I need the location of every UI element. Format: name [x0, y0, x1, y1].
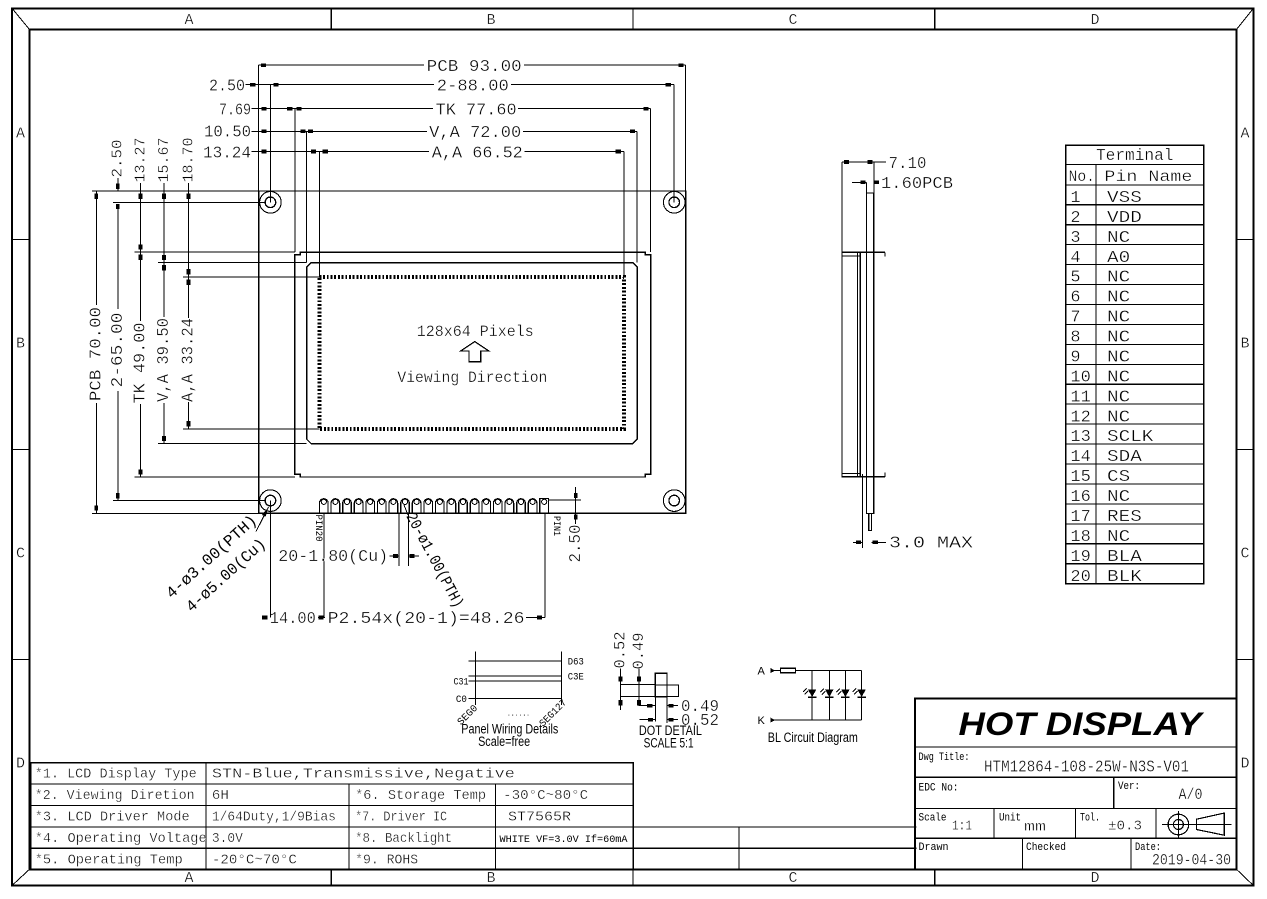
svg-text:NC: NC — [1107, 229, 1130, 248]
svg-text:5: 5 — [1070, 269, 1080, 288]
svg-text:A/0: A/0 — [1179, 786, 1203, 804]
svg-text:VDD: VDD — [1107, 209, 1142, 228]
svg-text:*8. Backlight: *8. Backlight — [355, 831, 452, 847]
svg-text:*5. Operating Temp: *5. Operating Temp — [35, 853, 183, 869]
svg-text:A0: A0 — [1107, 249, 1130, 268]
svg-text:B: B — [1240, 336, 1249, 353]
svg-text:20: 20 — [1070, 568, 1090, 587]
svg-text:D63: D63 — [568, 657, 584, 669]
svg-text:B: B — [486, 870, 495, 887]
svg-text:0.49: 0.49 — [630, 633, 648, 670]
svg-text:C31: C31 — [454, 677, 469, 689]
svg-text:WHITE VF=3.0V If=60mA: WHITE VF=3.0V If=60mA — [500, 834, 629, 846]
svg-text:D: D — [1090, 12, 1099, 29]
svg-text:BLK: BLK — [1107, 568, 1143, 587]
svg-text:15: 15 — [1070, 468, 1090, 487]
svg-text:A: A — [758, 666, 766, 678]
svg-text:BLA: BLA — [1107, 548, 1143, 567]
svg-text:0.52: 0.52 — [612, 632, 630, 669]
svg-text:D: D — [16, 756, 25, 773]
svg-text:SDA: SDA — [1107, 448, 1143, 467]
svg-text:7.10: 7.10 — [889, 155, 927, 174]
svg-text:Pin Name: Pin Name — [1104, 168, 1192, 186]
svg-text:*2. Viewing Diretion: *2. Viewing Diretion — [35, 788, 195, 804]
svg-text:1: 1 — [1070, 189, 1080, 208]
svg-text:C: C — [1240, 546, 1249, 563]
svg-text:B: B — [16, 336, 25, 353]
svg-text:Drawn: Drawn — [919, 842, 949, 854]
svg-text:......: ...... — [507, 706, 530, 720]
svg-text:Viewing Direction: Viewing Direction — [397, 369, 547, 387]
svg-text:A: A — [16, 126, 25, 143]
svg-text:HTM12864-108-25W-N3S-V01: HTM12864-108-25W-N3S-V01 — [984, 759, 1189, 778]
svg-text:NC: NC — [1107, 329, 1130, 348]
svg-text:17: 17 — [1070, 508, 1090, 527]
svg-text:K: K — [758, 715, 766, 727]
svg-text:1.60PCB: 1.60PCB — [881, 175, 953, 194]
svg-text:VSS: VSS — [1107, 189, 1142, 208]
svg-text:18: 18 — [1070, 528, 1090, 547]
svg-text:C0: C0 — [456, 694, 467, 706]
svg-text:2-65.00: 2-65.00 — [109, 313, 128, 388]
svg-text:7: 7 — [1070, 309, 1080, 328]
svg-text:ST7565R: ST7565R — [508, 810, 572, 826]
svg-text:Unit: Unit — [999, 813, 1021, 825]
svg-text:SCLK: SCLK — [1107, 428, 1154, 447]
svg-text:Dwg Title:: Dwg Title: — [919, 752, 970, 764]
svg-text:20-1.80(Cu): 20-1.80(Cu) — [278, 548, 388, 567]
svg-text:V,A 39.50: V,A 39.50 — [155, 318, 174, 402]
svg-text:TK 49.00: TK 49.00 — [132, 323, 151, 404]
svg-text:*4. Operating Voltage: *4. Operating Voltage — [35, 831, 207, 847]
svg-text:2: 2 — [1070, 209, 1080, 228]
svg-text:-20°C~70°C: -20°C~70°C — [212, 853, 297, 869]
svg-text:P2.54x(20-1)=48.26: P2.54x(20-1)=48.26 — [328, 610, 525, 629]
svg-text:2.50: 2.50 — [209, 78, 245, 97]
svg-text:7.69: 7.69 — [219, 102, 251, 121]
svg-text:13: 13 — [1070, 428, 1090, 447]
svg-text:C: C — [788, 12, 797, 29]
svg-text:HOT DISPLAY: HOT DISPLAY — [959, 706, 1205, 742]
svg-text:3.0V: 3.0V — [212, 831, 244, 847]
svg-text:Checked: Checked — [1026, 842, 1066, 854]
svg-text:14: 14 — [1070, 448, 1090, 467]
svg-text:2.50: 2.50 — [567, 525, 586, 563]
svg-text:Terminal: Terminal — [1096, 147, 1174, 166]
svg-text:9: 9 — [1070, 349, 1080, 368]
svg-text:±0.3: ±0.3 — [1108, 819, 1142, 835]
svg-text:15.67: 15.67 — [156, 138, 173, 183]
svg-text:3: 3 — [1070, 229, 1080, 248]
svg-text:SCALE 5:1: SCALE 5:1 — [644, 736, 694, 751]
svg-text:A,A 66.52: A,A 66.52 — [432, 144, 523, 163]
svg-text:18.70: 18.70 — [181, 138, 198, 183]
svg-text:13.27: 13.27 — [133, 138, 150, 183]
svg-text:D: D — [1240, 756, 1249, 773]
svg-text:NC: NC — [1107, 289, 1130, 308]
svg-text:14.00: 14.00 — [270, 610, 316, 629]
svg-text:2-88.00: 2-88.00 — [437, 78, 509, 97]
svg-text:PIN1: PIN1 — [550, 516, 561, 536]
svg-text:NC: NC — [1107, 269, 1130, 288]
svg-text:NC: NC — [1107, 368, 1130, 387]
svg-text:C: C — [16, 546, 25, 563]
svg-text:*7. Driver IC: *7. Driver IC — [355, 810, 447, 826]
svg-text:2.50: 2.50 — [109, 140, 126, 178]
svg-text:NC: NC — [1107, 528, 1130, 547]
svg-text:*1. LCD Display Type: *1. LCD Display Type — [35, 767, 197, 783]
svg-text:128x64 Pixels: 128x64 Pixels — [417, 323, 534, 341]
svg-text:Scale=free: Scale=free — [478, 734, 530, 749]
svg-text:PCB 93.00: PCB 93.00 — [427, 58, 522, 77]
svg-text:NC: NC — [1107, 488, 1130, 507]
svg-text:1:1: 1:1 — [952, 819, 972, 835]
svg-text:6: 6 — [1070, 289, 1080, 308]
svg-text:Ver:: Ver: — [1118, 781, 1140, 793]
svg-text:A,A 33.24: A,A 33.24 — [180, 318, 199, 402]
svg-text:STN-Blue,Transmissive,Negative: STN-Blue,Transmissive,Negative — [212, 767, 515, 783]
svg-text:16: 16 — [1070, 488, 1090, 507]
svg-text:No.: No. — [1069, 168, 1096, 186]
svg-text:*9. ROHS: *9. ROHS — [355, 853, 418, 869]
svg-text:PIN20: PIN20 — [312, 515, 323, 542]
svg-text:CS: CS — [1107, 468, 1130, 487]
svg-text:C3E: C3E — [568, 672, 584, 684]
svg-text:10.50: 10.50 — [204, 124, 251, 143]
svg-text:PCB 70.00: PCB 70.00 — [87, 307, 106, 401]
svg-text:13.24: 13.24 — [203, 144, 251, 163]
svg-text:12: 12 — [1070, 408, 1090, 427]
svg-text:BL Circuit Diagram: BL Circuit Diagram — [768, 730, 858, 745]
svg-text:4: 4 — [1070, 249, 1080, 268]
svg-text:NC: NC — [1107, 408, 1130, 427]
svg-text:2019-04-30: 2019-04-30 — [1152, 852, 1231, 870]
svg-text:mm: mm — [1024, 820, 1046, 836]
svg-text:A: A — [184, 870, 193, 887]
svg-text:*3. LCD Driver Mode: *3. LCD Driver Mode — [35, 810, 190, 826]
svg-text:EDC No:: EDC No: — [919, 783, 959, 795]
svg-text:1/64Duty,1/9Bias: 1/64Duty,1/9Bias — [212, 810, 336, 826]
svg-text:Tol.: Tol. — [1080, 813, 1100, 825]
svg-text:NC: NC — [1107, 388, 1130, 407]
svg-text:3.0 MAX: 3.0 MAX — [889, 535, 973, 554]
svg-text:D: D — [1090, 870, 1099, 887]
svg-text:8: 8 — [1070, 329, 1080, 348]
svg-text:Scale: Scale — [919, 813, 947, 825]
svg-text:*6. Storage Temp: *6. Storage Temp — [355, 788, 486, 804]
svg-text:NC: NC — [1107, 309, 1130, 328]
svg-text:C: C — [788, 870, 797, 887]
svg-text:10: 10 — [1070, 368, 1090, 387]
svg-text:V,A 72.00: V,A 72.00 — [429, 124, 521, 143]
svg-text:6H: 6H — [212, 788, 229, 804]
svg-text:TK 77.60: TK 77.60 — [436, 102, 517, 121]
svg-text:19: 19 — [1070, 548, 1090, 567]
svg-text:B: B — [486, 12, 495, 29]
svg-text:-30°C~80°C: -30°C~80°C — [503, 788, 588, 804]
svg-text:11: 11 — [1070, 388, 1090, 407]
svg-text:RES: RES — [1107, 508, 1142, 527]
svg-text:A: A — [184, 12, 193, 29]
svg-text:A: A — [1240, 126, 1249, 143]
svg-text:NC: NC — [1107, 349, 1130, 368]
